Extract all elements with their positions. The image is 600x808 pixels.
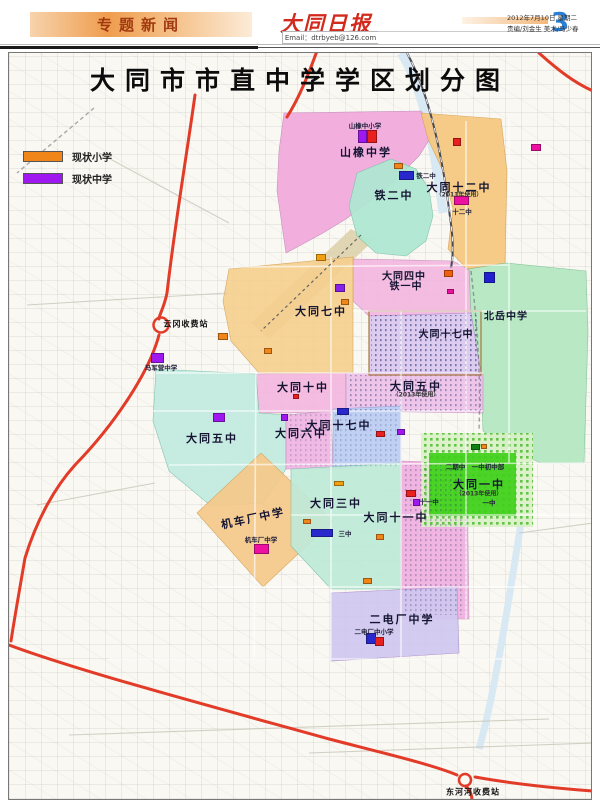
legend-swatch-middle-school <box>23 173 63 184</box>
section-label: 专题新闻 <box>97 14 185 35</box>
header-right-block: 2012年7月10日 星期二 责编/刘金生 美术/马少春 <box>507 13 597 35</box>
school-site-marker <box>218 333 228 340</box>
school-site-marker <box>358 130 367 143</box>
district-label-qizhong: 大同七中 <box>295 303 347 319</box>
label-majunying-school: 马军营中学 <box>145 362 178 372</box>
legend-swatch-primary-school <box>23 151 63 162</box>
newspaper-page: 专题新闻 大同日报 Email：dtrbyeb@126.com 3 2012年7… <box>0 0 600 808</box>
district-label-shiyizhong: 大同十一中 <box>364 509 429 525</box>
school-site-marker <box>311 529 333 537</box>
label-jichechang-site: 机车厂中学 <box>245 534 278 544</box>
section-banner: 专题新闻 <box>30 12 252 37</box>
school-site-marker <box>406 490 416 497</box>
district-label-tieerzhong: 铁二中 <box>375 187 414 203</box>
note-shierzhong-2013: （2013年使用） <box>436 190 483 199</box>
district-label-shanxiang: 山橡中学 <box>340 144 392 160</box>
school-site-marker <box>303 519 311 524</box>
email-line: Email：dtrbyeb@126.com <box>282 31 378 44</box>
label-yizhong-site: 一中 <box>483 497 496 507</box>
note-wuzhong-2013: （2013年使用） <box>393 390 440 399</box>
legend-row-primary: 现状小学 <box>23 149 112 164</box>
district-sanzhong-region <box>291 463 401 589</box>
school-site-marker <box>337 408 349 415</box>
label-donghe-toll-station: 东河河收费站 <box>446 787 500 798</box>
school-site-marker <box>394 163 403 169</box>
school-site-marker <box>471 444 480 450</box>
school-site-marker <box>213 413 225 422</box>
label-shierzhong-site: 十二中 <box>452 206 472 216</box>
district-label-beiyue: 北岳中学 <box>484 308 528 323</box>
school-site-marker <box>316 254 326 261</box>
map-title: 大同市市直中学学区划分图 <box>90 61 510 97</box>
school-district-map: 大同市市直中学学区划分图 现状小学 现状中学 山橡中学 铁二中 大同十二中 大同… <box>8 52 592 800</box>
date-line: 2012年7月10日 星期二 <box>507 13 597 24</box>
school-site-marker <box>397 429 405 435</box>
map-legend: 现状小学 现状中学 <box>23 149 112 193</box>
label-tieerzhong-site: 铁二中 <box>416 170 436 180</box>
school-site-marker <box>254 544 269 554</box>
school-site-marker <box>264 348 272 354</box>
label-shanxiang-school-site: 山橡中小学 <box>349 120 382 130</box>
river-southeast <box>479 523 521 749</box>
school-site-marker <box>334 481 344 486</box>
oldcity-buildings <box>371 315 479 373</box>
district-label-wuzhong-west: 大同五中 <box>186 430 238 446</box>
header-divider-black-right <box>258 47 600 48</box>
school-site-marker <box>453 138 461 146</box>
district-label-shiqizhong: 大同十七中 <box>307 417 372 433</box>
school-site-marker <box>444 270 453 277</box>
staff-line: 责编/刘金生 美术/马少春 <box>507 24 597 35</box>
school-site-marker <box>335 284 345 292</box>
label-sanzhong-site: 三中 <box>339 528 352 538</box>
label-shiyizhong-site: 十一中 <box>419 496 439 506</box>
school-site-marker <box>375 637 384 646</box>
school-site-marker <box>376 431 385 437</box>
school-site-marker <box>531 144 541 151</box>
school-site-marker <box>363 578 372 584</box>
school-site-marker <box>481 444 487 449</box>
school-site-marker <box>484 272 495 283</box>
donghe-interchange-loop <box>459 774 471 786</box>
district-label-tieyizhong: 铁一中 <box>390 278 423 293</box>
header-divider-black <box>0 46 258 49</box>
legend-row-middle: 现状中学 <box>23 171 112 186</box>
legend-label-middle-school: 现状中学 <box>72 171 112 186</box>
district-label-sanzhong: 大同三中 <box>310 495 362 511</box>
header-divider-thin <box>0 44 600 45</box>
district-label-shizhong: 大同十中 <box>277 379 329 395</box>
school-site-marker <box>281 414 288 421</box>
school-site-marker <box>447 289 454 294</box>
district-label-shiqizhong-oldcity: 大同十七中 <box>419 326 474 341</box>
school-site-marker <box>399 171 414 180</box>
label-yizhong-junior-dept: 二期中 一中初中部 <box>446 461 505 471</box>
label-yungang-toll-station: 云冈收费站 <box>164 319 209 330</box>
school-site-marker <box>376 534 384 540</box>
school-site-marker <box>367 130 377 143</box>
district-label-erdianchang: 二电厂中学 <box>370 611 435 627</box>
label-erdianchang-site: 二电厂中小学 <box>355 626 394 636</box>
legend-label-primary-school: 现状小学 <box>72 149 112 164</box>
